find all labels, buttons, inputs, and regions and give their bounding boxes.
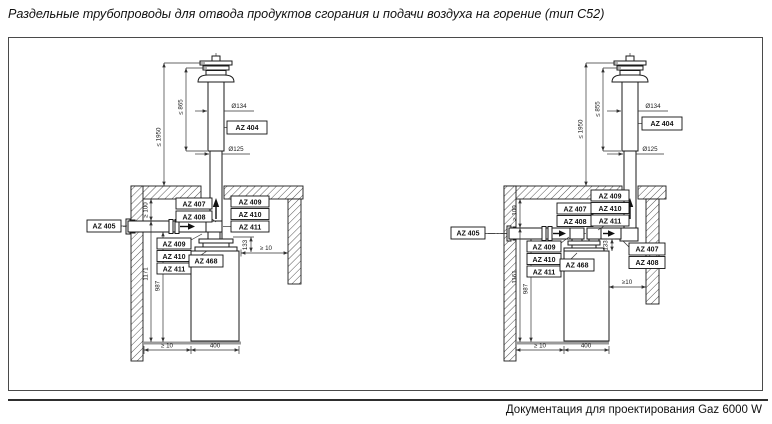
- label-az-410-text: AZ 410: [599, 206, 622, 213]
- flue-elbow-up: [620, 228, 638, 241]
- label-az-404: AZ 404: [227, 121, 267, 134]
- air-elbow: [570, 228, 584, 239]
- ceiling-hatch-right: [638, 186, 666, 199]
- left-adapter: [195, 239, 237, 251]
- dim-boiler-width: 400: [210, 343, 221, 350]
- dim-side-clearance: ≥10: [622, 279, 633, 286]
- dim-floor-side-clearance: ≥ 10: [534, 343, 547, 350]
- label-az-468-text: AZ 468: [195, 259, 218, 266]
- label-az-409-text: AZ 409: [599, 194, 622, 201]
- label-az-408-text: AZ 408: [183, 215, 206, 222]
- label-az-404-text: AZ 404: [651, 121, 674, 128]
- label-az-409b-text: AZ 409: [533, 245, 556, 252]
- diagram-panel: ≤ 1950 ≤ 865 Ø134 Ø125 ≥ 100 1171 987 13…: [8, 37, 763, 391]
- label-az-468: AZ 468: [560, 259, 594, 271]
- label-az-405: AZ 405: [87, 220, 121, 232]
- outer-flue-pipe: [622, 82, 638, 151]
- outer-flue-pipe: [208, 82, 224, 151]
- label-az-410-text: AZ 410: [239, 212, 262, 219]
- label-az-408b-text: AZ 408: [636, 260, 659, 267]
- dim-upper-section: ≤ 855: [595, 101, 602, 117]
- footer-rule: [8, 399, 768, 401]
- label-az-411b-text: AZ 411: [533, 270, 556, 277]
- label-az-404-text: AZ 404: [236, 125, 259, 132]
- left-diagram: ≤ 1950 ≤ 865 Ø134 Ø125 ≥ 100 1171 987 13…: [81, 49, 321, 379]
- dim-ceiling-clearance: ≥ 100: [512, 205, 519, 221]
- label-stack-top: AZ 409 AZ 410 AZ 411: [591, 190, 629, 226]
- label-az-411b-text: AZ 411: [163, 267, 186, 274]
- label-az-411-text: AZ 411: [599, 219, 622, 226]
- dim-adapter-height: 133: [242, 239, 249, 250]
- label-az-410b-text: AZ 410: [533, 257, 556, 264]
- right-adapter: [564, 241, 604, 251]
- air-elbow: [206, 221, 222, 232]
- label-stack-flue: AZ 407 AZ 408: [557, 203, 593, 227]
- dim-outer-diameter: Ø134: [645, 103, 661, 110]
- label-az-411-text: AZ 411: [239, 225, 262, 232]
- dim-boiler-width: 400: [581, 343, 592, 350]
- dim-upper-section: ≤ 865: [178, 99, 185, 115]
- right-diagram: ≤ 1950 ≤ 855 Ø134 Ø125 ≥ 100 1161 987 13…: [446, 49, 686, 379]
- dim-ceiling-clearance: ≥ 100: [143, 202, 150, 218]
- dim-side-clearance: ≥ 10: [260, 245, 273, 252]
- dim-floor-side-clearance: ≥ 10: [161, 343, 174, 350]
- label-az-468: AZ 468: [189, 255, 223, 267]
- label-az-407b-text: AZ 407: [636, 247, 659, 254]
- label-az-409-text: AZ 409: [239, 200, 262, 207]
- label-stack-side: AZ 409 AZ 410 AZ 411: [157, 238, 191, 274]
- footer-text: Документация для проектирования Gaz 6000…: [506, 404, 762, 416]
- label-az-410b-text: AZ 410: [163, 254, 186, 261]
- label-az-405-text: AZ 405: [457, 231, 480, 238]
- dim-inner-diameter: Ø125: [228, 146, 244, 153]
- label-az-405-text: AZ 405: [93, 224, 116, 231]
- page-title: Раздельные трубопроводы для отвода проду…: [8, 6, 604, 21]
- label-az-407-text: AZ 407: [183, 202, 206, 209]
- label-az-409b-text: AZ 409: [163, 242, 186, 249]
- dim-adapter-height: 133: [603, 240, 610, 251]
- label-stack-top: AZ 409 AZ 410 AZ 411: [231, 196, 269, 232]
- label-stack-side: AZ 409 AZ 410 AZ 411: [527, 241, 561, 277]
- wall-hatch-left: [131, 186, 143, 361]
- label-stack-flue: AZ 407 AZ 408: [176, 198, 212, 222]
- dim-outer-diameter: Ø134: [231, 103, 247, 110]
- right-air-duct: [507, 226, 584, 242]
- wall-hatch-right: [288, 199, 301, 284]
- label-az-468-text: AZ 468: [566, 263, 589, 270]
- label-az-408-text: AZ 408: [564, 219, 587, 226]
- label-az-407-text: AZ 407: [564, 207, 587, 214]
- right-flue-terminal: [587, 56, 648, 242]
- dim-height-upper: 1161: [512, 270, 519, 284]
- dim-total-height: ≤ 1950: [578, 119, 585, 138]
- dim-height-lower: 987: [155, 280, 162, 291]
- dim-inner-diameter: Ø125: [642, 146, 658, 153]
- dim-height-upper: 1171: [143, 267, 150, 281]
- dim-height-lower: 987: [523, 283, 530, 294]
- dim-total-height: ≤ 1950: [156, 127, 163, 146]
- label-az-405: AZ 405: [451, 227, 485, 239]
- label-az-404: AZ 404: [642, 117, 682, 130]
